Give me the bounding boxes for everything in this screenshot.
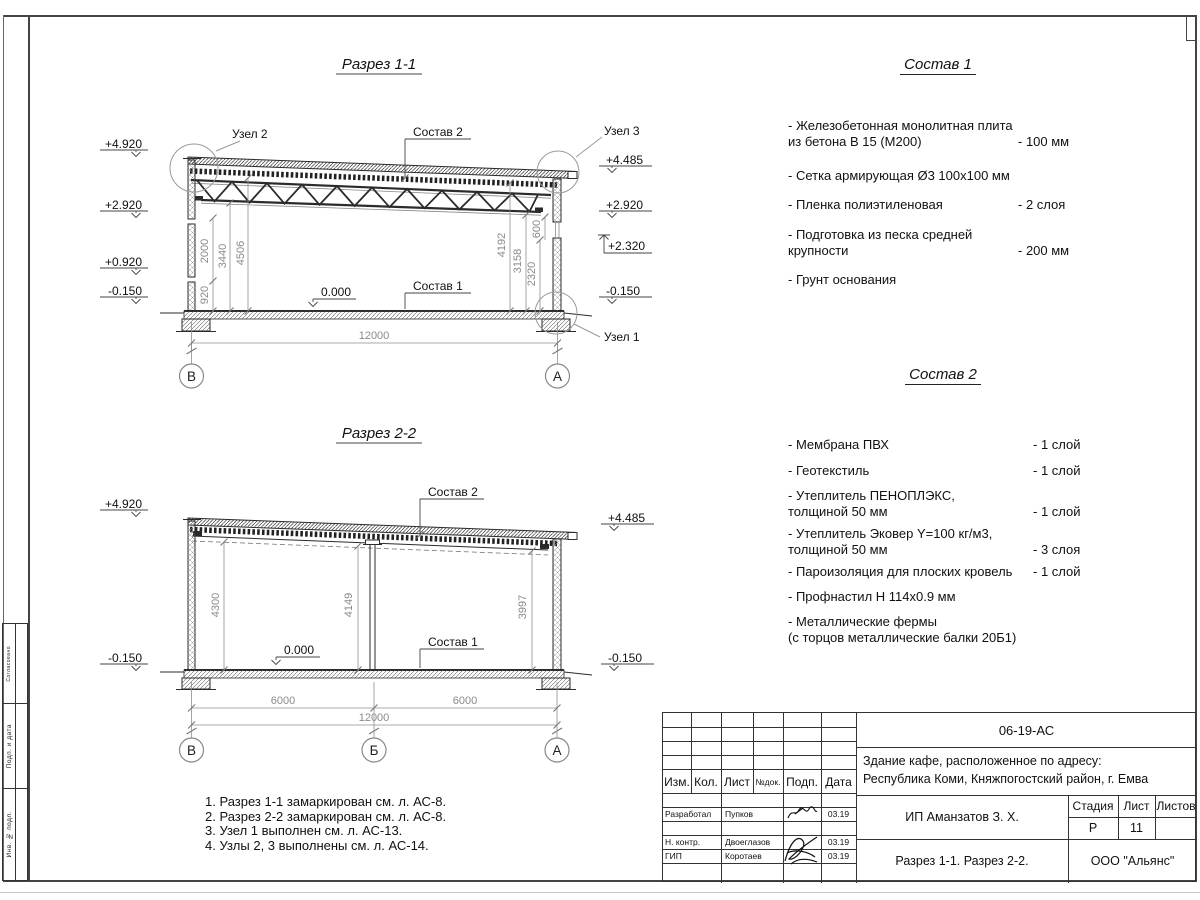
col-izm: Изм.: [663, 771, 691, 793]
svg-text:12000: 12000: [359, 712, 390, 724]
svg-text:4192: 4192: [496, 233, 508, 257]
company: ООО "Альянс": [1068, 839, 1197, 883]
sheets-label: Листов: [1155, 795, 1197, 817]
svg-text:3997: 3997: [517, 595, 529, 619]
svg-text:6000: 6000: [453, 695, 477, 707]
section-1-title: Разрез 1-1: [342, 56, 416, 73]
doc-code: 06-19-АС: [856, 713, 1197, 747]
corner-box-bottom: [1186, 40, 1197, 41]
uzel3-label: Узел 3: [604, 124, 640, 138]
dims-right: 4192 3158 2320 600: [496, 180, 549, 315]
elevation-marks-right: +4.485 -0.150: [601, 511, 654, 671]
stage-value: Р: [1068, 817, 1118, 839]
col-data: Дата: [821, 771, 856, 793]
date-ncontrol: 03.19: [821, 835, 856, 849]
list-item: - Утеплитель Эковер Y=100 кг/м3, толщино…: [788, 526, 1098, 558]
wall-left: [188, 521, 195, 670]
role-ncontrol: Н. контр.: [665, 835, 721, 849]
signature-developer: [785, 805, 819, 821]
svg-text:-0.150: -0.150: [608, 651, 642, 665]
svg-text:+4.920: +4.920: [105, 137, 142, 151]
svg-text:3158: 3158: [512, 249, 524, 273]
svg-text:4149: 4149: [343, 593, 355, 617]
wall-right: [553, 179, 561, 311]
foundation-left: [176, 319, 216, 332]
name-developer: Пупков: [725, 807, 781, 821]
role-developer: Разработал: [665, 807, 721, 821]
elevation-marks-right: +4.485 +2.920 +2.320 -0.150: [598, 153, 652, 304]
note-line: 4. Узлы 2, 3 выполнены см. л. АС-14.: [205, 839, 446, 854]
svg-text:-0.150: -0.150: [108, 651, 142, 665]
list-item: - Пленка полиэтиленовая - 2 слоя: [788, 197, 1088, 213]
list-item: - Железобетонная монолитная плита из бет…: [788, 118, 1088, 150]
object-line1: Здание кафе, расположенное по адресу:: [863, 751, 1193, 771]
notes-block: 1. Разрез 1-1 замаркирован см. л. АС-8. …: [205, 795, 446, 853]
svg-text:Б: Б: [370, 743, 379, 758]
roof-edge-detail: [568, 172, 577, 179]
svg-text:920: 920: [199, 286, 211, 304]
list-item: - Подготовка из песка средней крупности …: [788, 227, 1088, 259]
list-item: - Металлические фермы (с торцов металлич…: [788, 614, 1098, 646]
drawing-sheet: Разрез 1-1: [0, 0, 1200, 900]
section-2-2-drawing: Разрез 2-2: [80, 425, 660, 770]
name-gip: Коротаев: [725, 849, 783, 863]
wall-right: [553, 539, 561, 670]
role-gip: ГИП: [665, 849, 721, 863]
svg-text:+4.485: +4.485: [606, 153, 643, 167]
list-item: - Профнастил Н 114х0.9 мм: [788, 589, 1098, 605]
callouts: Состав 2 Состав 1 0.000: [272, 485, 485, 668]
sheets-value: [1155, 817, 1197, 839]
elevation-marks-left: +4.920 -0.150: [100, 497, 148, 671]
date-gip: 03.19: [821, 849, 856, 863]
sheet-shadow: [0, 892, 1200, 893]
section-1-1-drawing: Разрез 1-1: [80, 45, 660, 395]
signature-gip: [781, 831, 821, 867]
list-item: - Грунт основания: [788, 272, 1088, 288]
sheet-value: 11: [1118, 817, 1155, 839]
sostav2-list: Состав 2 - Мембрана ПВХ - 1 слой - Геоте…: [788, 367, 1098, 652]
note-line: 1. Разрез 1-1 замаркирован см. л. АС-8.: [205, 795, 446, 810]
sostav1-label: Состав 1: [413, 279, 463, 293]
svg-text:4300: 4300: [210, 593, 222, 617]
sostav2-label: Состав 2: [413, 125, 463, 139]
side-stamp: Согласовано Подп. и дата Инв. № подл.: [2, 623, 28, 881]
client: ИП Аманзатов З. Х.: [856, 795, 1068, 839]
drawing-title: Разрез 1-1. Разрез 2-2.: [856, 839, 1068, 883]
stage-label: Стадия: [1068, 795, 1118, 817]
svg-text:6000: 6000: [271, 695, 295, 707]
side-stamp-cell-inv: Инв. № подл.: [3, 789, 27, 880]
foundation-right: [536, 678, 576, 690]
col-list: Лист: [721, 771, 753, 793]
list-item: - Утеплитель ПЕНОПЛЭКС, толщиной 50 мм -…: [788, 488, 1098, 520]
corner-box-left: [1186, 15, 1187, 40]
date-developer: 03.19: [821, 807, 856, 821]
col-ndok: №док.: [753, 771, 783, 793]
middle-column: [363, 540, 382, 670]
floor-slab: [160, 670, 592, 678]
svg-text:2320: 2320: [526, 262, 538, 286]
svg-text:+0.920: +0.920: [105, 255, 142, 269]
svg-text:+4.920: +4.920: [105, 497, 142, 511]
svg-text:-0.150: -0.150: [606, 284, 640, 298]
zero-level: 0.000: [284, 643, 314, 657]
span-dimension: 12000: [188, 322, 561, 351]
object-line2: Республика Коми, Княжпогостский район, г…: [863, 769, 1193, 789]
bottom-dimensions: 6000 6000 12000: [188, 682, 561, 729]
list-item: - Геотекстиль - 1 слой: [788, 463, 1098, 479]
uzel2-label: Узел 2: [232, 127, 268, 141]
foundation-left: [176, 678, 216, 690]
frame-top: [3, 15, 1197, 17]
zero-level: 0.000: [321, 285, 351, 299]
svg-text:+4.485: +4.485: [608, 511, 645, 525]
sostav2-heading: Состав 2: [788, 367, 1098, 383]
col-kol: Кол.: [691, 771, 721, 793]
svg-text:2000: 2000: [199, 239, 211, 263]
list-item: - Сетка армирующая Ø3 100х100 мм: [788, 168, 1088, 184]
note-line: 3. Узел 1 выполнен см. л. АС-13.: [205, 824, 446, 839]
sheet-label: Лист: [1118, 795, 1155, 817]
svg-text:В: В: [187, 743, 196, 758]
title-block: Изм. Кол. Лист №док. Подп. Дата Разработ…: [662, 712, 1196, 882]
svg-text:А: А: [553, 369, 562, 384]
svg-text:3440: 3440: [217, 244, 229, 268]
floor-slab: [160, 311, 592, 319]
side-stamp-cell-sign-date: Подп. и дата: [3, 704, 27, 789]
name-ncontrol: Двоеглазов: [725, 835, 783, 849]
roof-slab: [188, 157, 577, 179]
list-item: - Мембрана ПВХ - 1 слой: [788, 437, 1098, 453]
sostav2-label: Состав 2: [428, 485, 478, 499]
wall-left: [188, 160, 195, 311]
list-item: - Пароизоляция для плоских кровель - 1 с…: [788, 564, 1098, 580]
svg-text:А: А: [552, 743, 561, 758]
svg-text:600: 600: [531, 220, 543, 238]
svg-text:+2.920: +2.920: [105, 198, 142, 212]
axis-marks: В А: [180, 343, 570, 388]
svg-text:+2.920: +2.920: [606, 198, 643, 212]
svg-text:12000: 12000: [359, 330, 390, 342]
uzel1-label: Узел 1: [604, 330, 640, 344]
dims-vertical: 4300 4149 3997: [210, 539, 536, 674]
side-stamp-cell-agreed: Согласовано: [3, 624, 27, 704]
svg-text:4506: 4506: [235, 241, 247, 265]
foundation-right: [536, 319, 576, 332]
note-line: 2. Разрез 2-2 замаркирован см. л. АС-8.: [205, 810, 446, 825]
svg-text:-0.150: -0.150: [108, 284, 142, 298]
sostav1-heading: Состав 1: [788, 57, 1088, 73]
svg-text:+2.320: +2.320: [608, 239, 645, 253]
sostav1-label: Состав 1: [428, 635, 478, 649]
axis-marks: В Б А: [180, 728, 570, 762]
section-2-title: Разрез 2-2: [342, 425, 417, 442]
elevation-marks-left: +4.920 +2.920 +0.920 -0.150: [100, 137, 148, 304]
col-podp: Подп.: [783, 771, 821, 793]
svg-text:В: В: [187, 369, 196, 384]
roof-edge-detail: [568, 533, 577, 540]
frame-left: [28, 15, 30, 881]
sostav1-list: Состав 1 - Железобетонная монолитная пли…: [788, 57, 1088, 302]
